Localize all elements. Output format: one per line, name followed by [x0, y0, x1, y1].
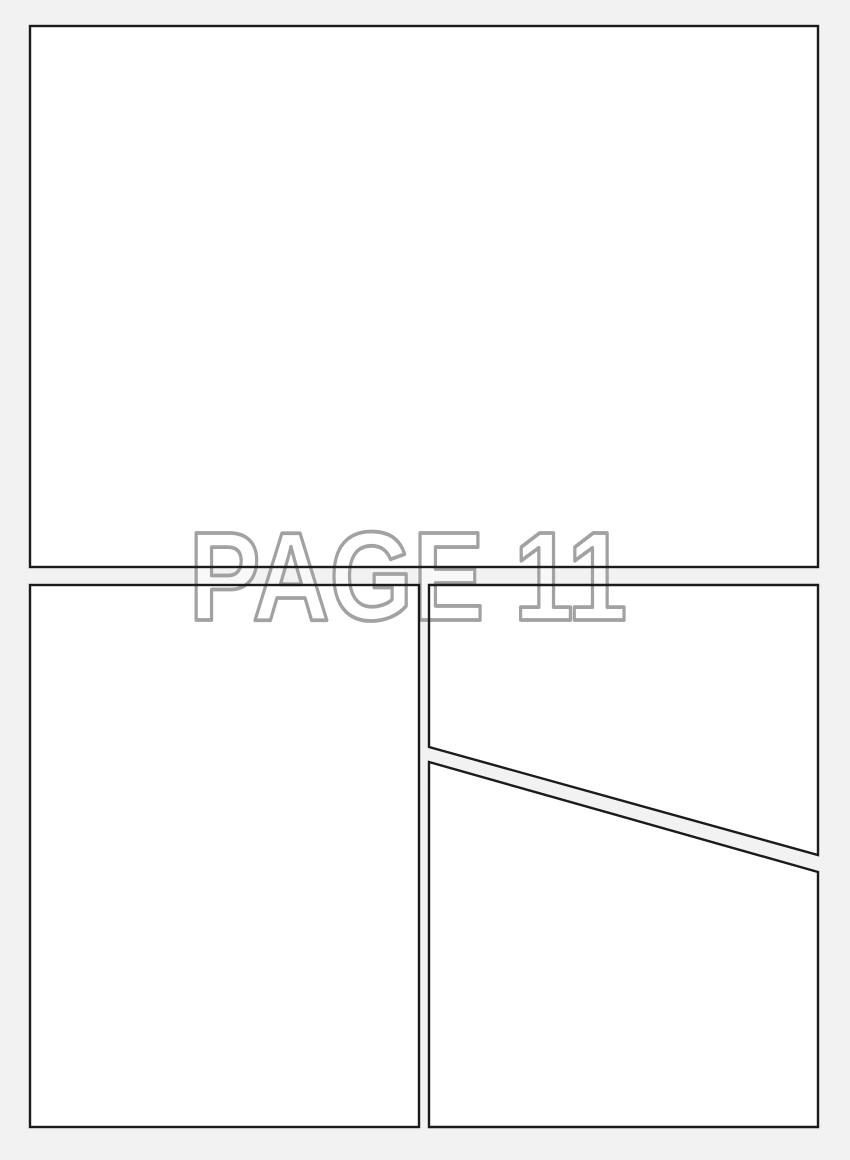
- comic-page-template: PAGE 11: [0, 0, 850, 1160]
- page-number-watermark: PAGE 11: [189, 506, 627, 647]
- panel-top-fill: [30, 26, 818, 567]
- comic-page-canvas: PAGE 11: [0, 0, 850, 1160]
- panel-bottom-left-fill: [30, 585, 419, 1127]
